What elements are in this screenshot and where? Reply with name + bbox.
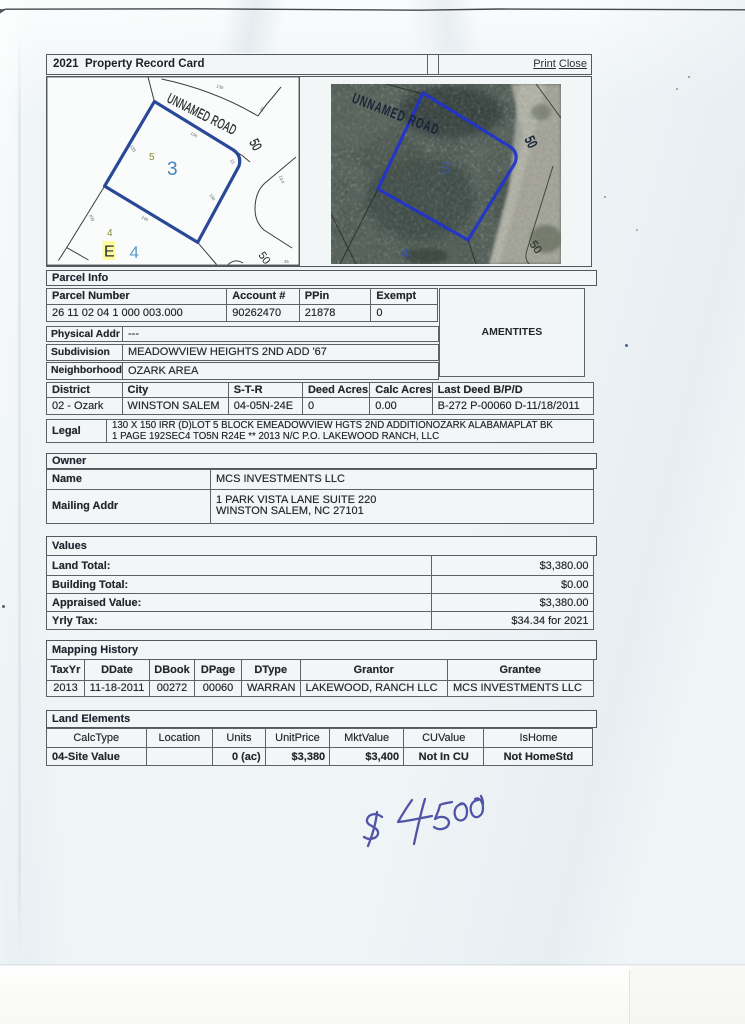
svg-text:45: 45 — [284, 259, 289, 264]
svg-text:E: E — [104, 244, 115, 261]
svg-text:3: 3 — [167, 159, 178, 180]
svg-text:3: 3 — [441, 160, 450, 177]
svg-text:4: 4 — [130, 243, 139, 262]
svg-text:4: 4 — [401, 245, 409, 261]
svg-text:4: 4 — [107, 228, 113, 239]
svg-text:5: 5 — [149, 152, 155, 163]
